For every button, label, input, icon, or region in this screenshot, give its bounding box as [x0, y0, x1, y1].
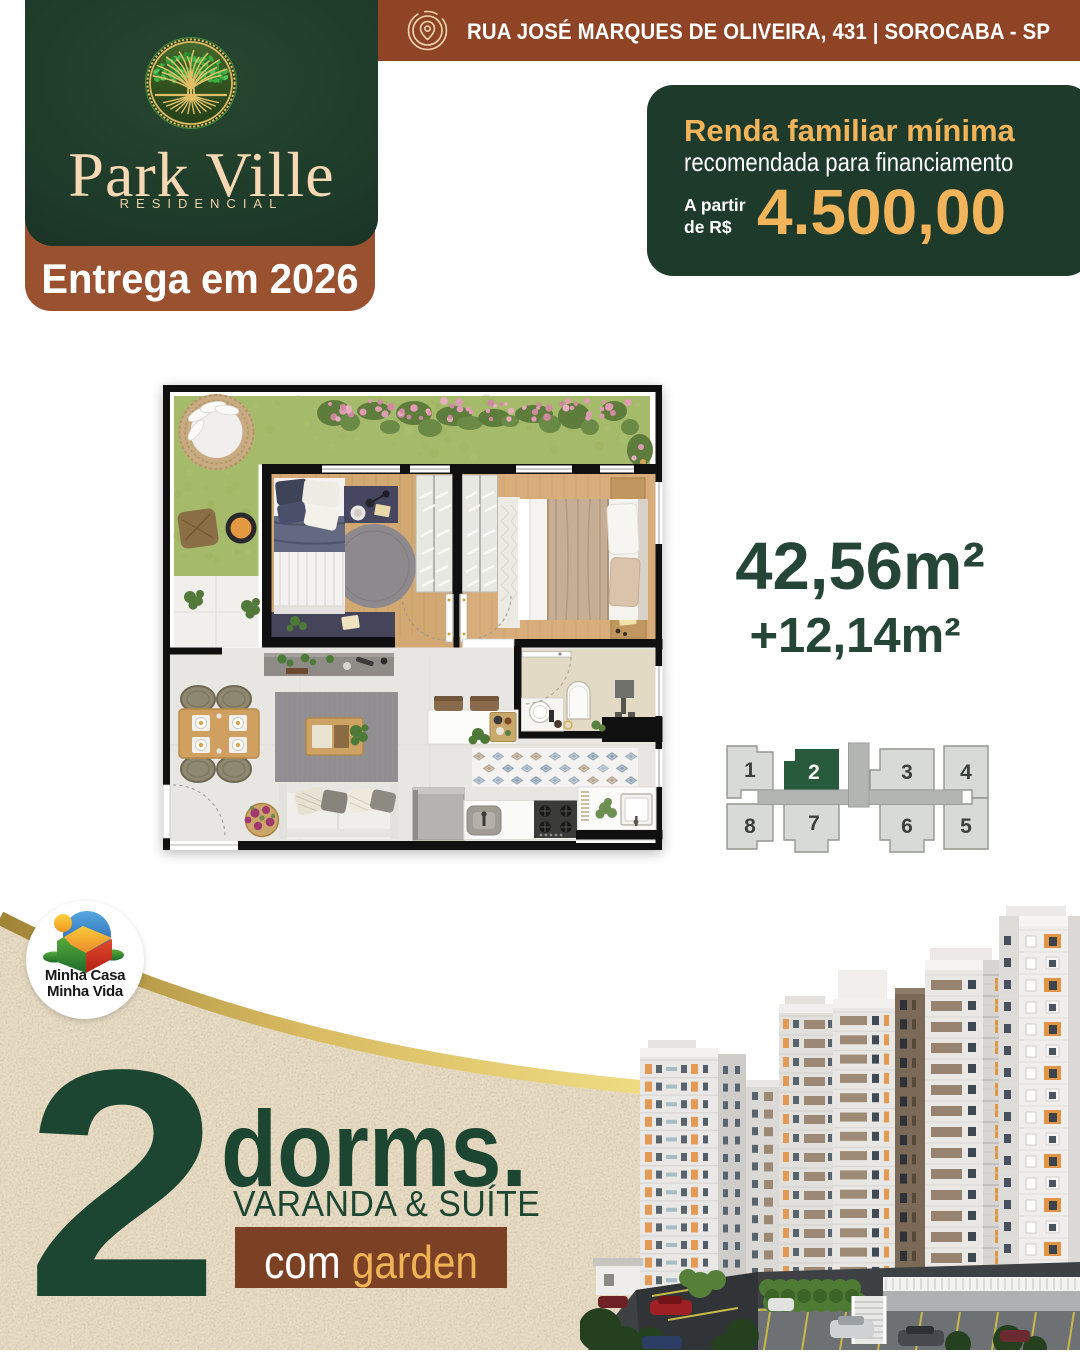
svg-text:1: 1 [744, 759, 756, 782]
svg-text:2: 2 [808, 761, 820, 784]
svg-text:7: 7 [808, 812, 820, 835]
svg-text:4: 4 [960, 761, 972, 784]
svg-text:8: 8 [744, 815, 756, 838]
svg-text:Minha Casa: Minha Casa [45, 967, 126, 984]
svg-text:6: 6 [901, 815, 913, 838]
svg-text:3: 3 [901, 761, 913, 784]
svg-text:5: 5 [960, 815, 972, 838]
